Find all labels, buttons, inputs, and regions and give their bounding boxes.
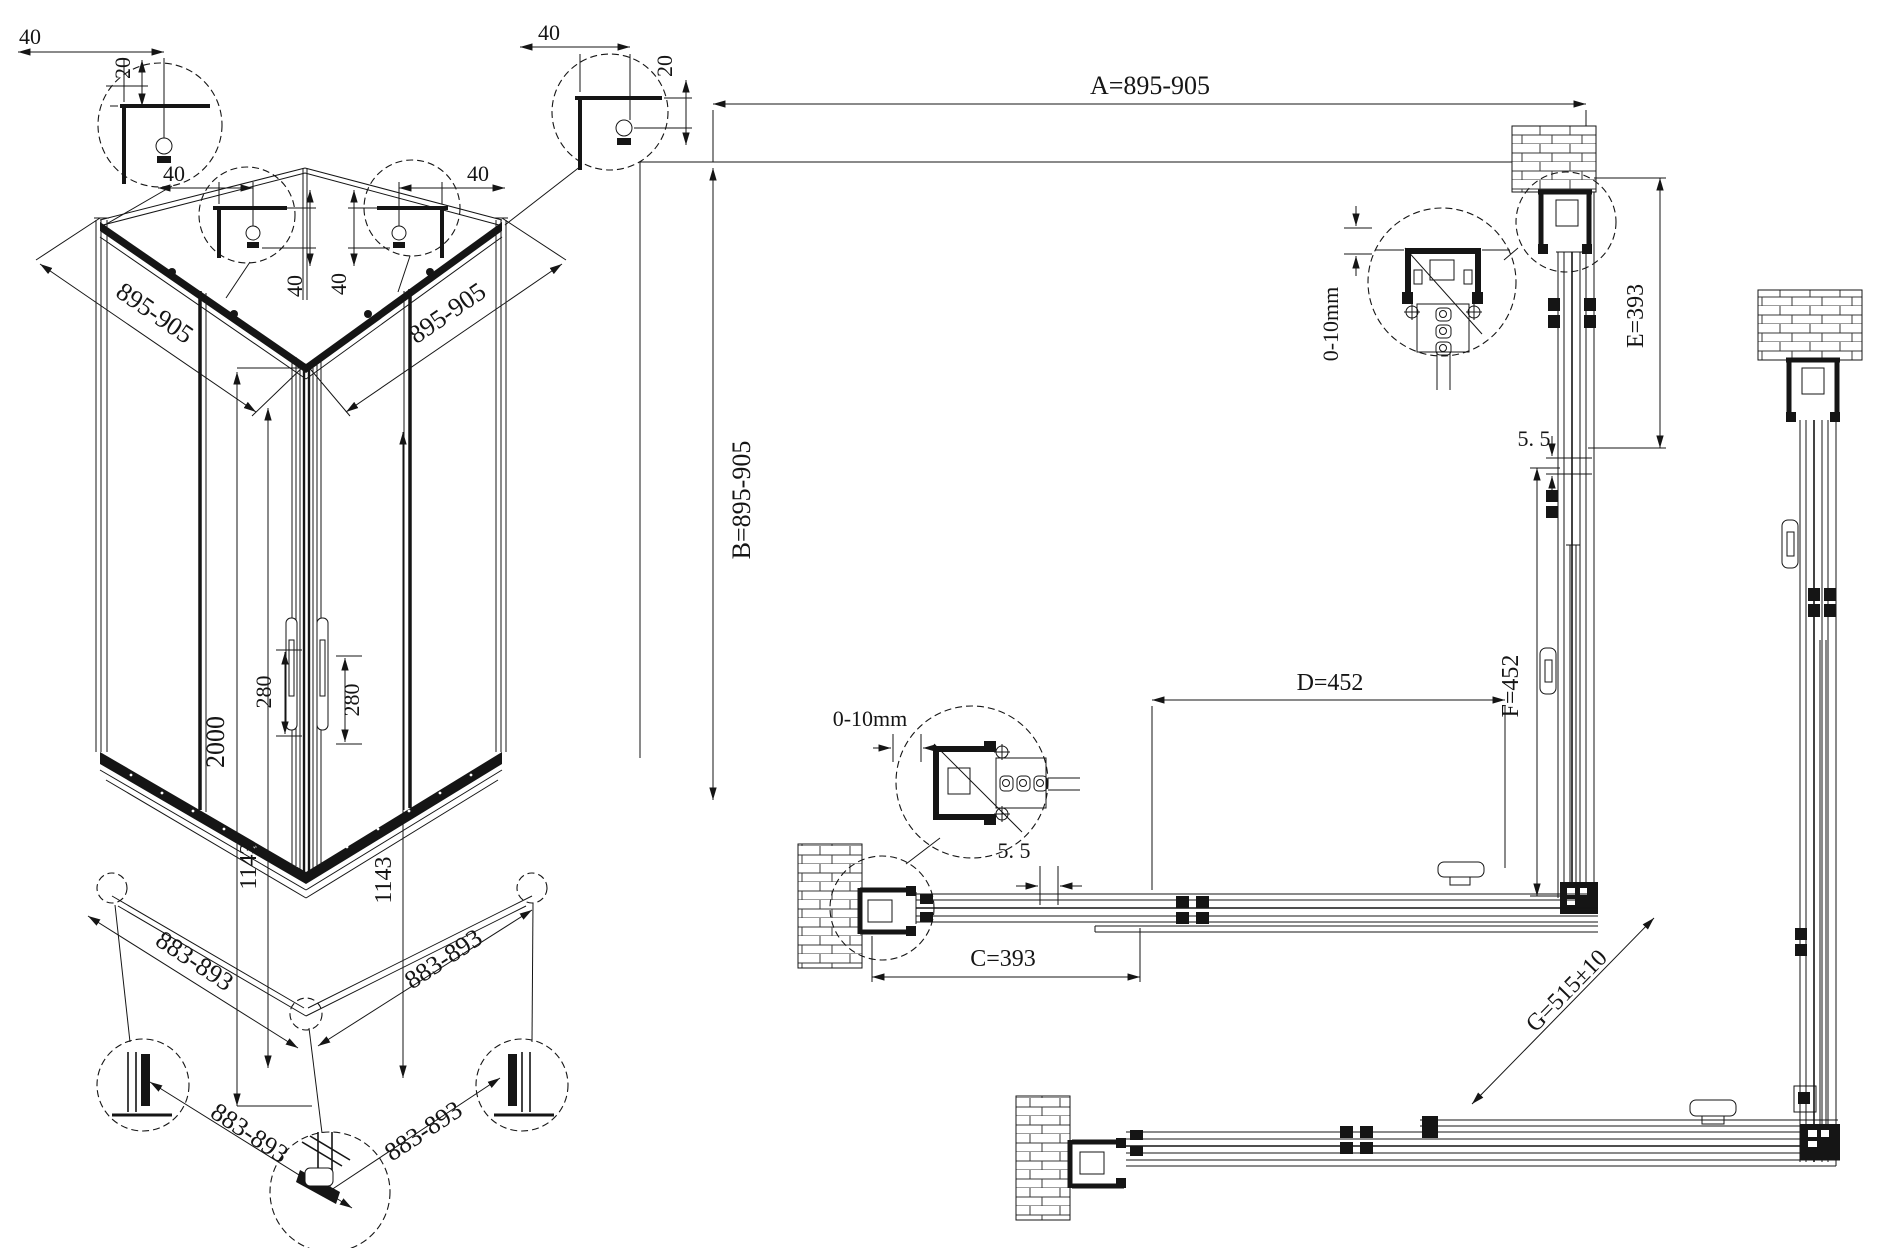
leader-line [906, 838, 940, 864]
brick-wall-top [1512, 126, 1596, 192]
dim-handle-right: 280 [339, 684, 364, 717]
wall-profile-top [1538, 192, 1592, 252]
wall-profile-mirror-bottom [1070, 1140, 1124, 1188]
brick-wall-mirror-top [1758, 290, 1862, 360]
leader-line [115, 905, 130, 1042]
door-handle-left [286, 618, 297, 730]
roller-bracket-mirror [1130, 1130, 1143, 1156]
door-end-cap [1422, 1116, 1438, 1138]
panel-clip-lower [1546, 490, 1558, 518]
dim-tray-right: 883-893 [379, 1095, 467, 1167]
leader-line [226, 262, 250, 298]
screw-icon [392, 226, 406, 240]
door-handle-plan-bottom [1438, 862, 1484, 877]
mirror-right-leg [1800, 420, 1836, 1166]
door-stiles [292, 357, 321, 866]
wall-profile-mirror-top [1786, 360, 1840, 420]
dim-detail-ml-h: 40 [282, 275, 307, 297]
leader-line [398, 256, 410, 292]
roller-bracket [230, 310, 238, 318]
door-handle-mirror-bottom [1690, 1100, 1736, 1116]
door-glass-top-leg [1566, 545, 1580, 898]
mirror-bottom-leg [1126, 1132, 1840, 1166]
detail-circle-top-right: 40 20 [505, 20, 692, 225]
dim-detail-tr-w: 40 [538, 20, 560, 45]
dim-F: F=452 [1498, 655, 1524, 718]
dim-detail-tl-w: 40 [19, 24, 41, 49]
screw-icon [246, 226, 260, 240]
corner-block [1560, 882, 1598, 914]
leader-line [505, 166, 581, 225]
foot-detail-marker-left [97, 873, 127, 903]
dim-detail-tl-h: 20 [110, 57, 135, 79]
adjustment-bracket [996, 758, 1046, 808]
bottom-profile-detail [508, 1054, 517, 1106]
bottom-profile-detail [141, 1054, 150, 1106]
dim-E: E=393 [1623, 284, 1649, 348]
dim-base-right: 883-893 [399, 923, 487, 995]
dim-gap-bottom: 5. 5 [998, 838, 1031, 863]
iso-view: 895-905 895-905 2000 1143 1143 280 280 8… [18, 20, 692, 1248]
bottom-rail-left [100, 752, 306, 884]
dim-line-width-right [346, 264, 562, 412]
roller-bracket [364, 310, 372, 318]
dim-adjust-top: 0-10mm [1318, 287, 1343, 362]
door-handle-right [317, 618, 328, 730]
plan-top-right-assembly [1512, 126, 1598, 914]
dim-detail-ml-w: 40 [163, 161, 185, 186]
dim-gap-top: 5. 5 [1518, 426, 1551, 451]
corner-profile-detail [213, 208, 287, 258]
dim-A: A=895-905 [1090, 71, 1210, 100]
front-corner-post [300, 362, 313, 872]
plan-view-mirror [1016, 290, 1862, 1220]
wall-profile-detail [1408, 248, 1478, 300]
roller-bracket [168, 268, 176, 276]
plan-view-main: A=895-905 B=895-905 [640, 71, 1666, 1104]
detail-circle-top-left: 40 20 [18, 24, 222, 226]
detail-circle-bottom-center [270, 1028, 390, 1248]
dim-adjust-bottom: 0-10mm [833, 706, 908, 731]
dim-detail-tr-h: 20 [652, 55, 677, 77]
dim-height: 2000 [201, 716, 230, 768]
screw-icon [616, 120, 632, 136]
dim-C: C=393 [970, 946, 1036, 972]
dim-door-left: 1143 [236, 842, 262, 889]
panel-clip-mirror-right-2 [1795, 928, 1807, 956]
dim-D: D=452 [1297, 670, 1364, 696]
dim-detail-mr-w: 40 [467, 161, 489, 186]
plan-bottom-left-assembly [798, 844, 1598, 968]
brick-wall-mirror-bottom [1016, 1096, 1070, 1220]
corner-block-mirror [1800, 1124, 1840, 1160]
door-handle-mirror-right [1782, 520, 1798, 568]
leader-line [532, 903, 533, 1042]
wall-profile-detail [936, 746, 992, 820]
door-handle-plan-right [1540, 648, 1556, 694]
roller-bracket [426, 268, 434, 276]
leader-line [309, 1028, 322, 1133]
dim-detail-mr-h: 40 [326, 273, 351, 295]
shower-enclosure-technical-drawing: 895-905 895-905 2000 1143 1143 280 280 8… [0, 0, 1897, 1248]
leader-line [103, 186, 172, 226]
panel-clip-mirror-bottom [1340, 1126, 1373, 1154]
dim-door-right: 1143 [371, 856, 397, 903]
drawing-page: 895-905 895-905 2000 1143 1143 280 280 8… [0, 0, 1897, 1248]
dim-handle-left: 280 [251, 676, 276, 709]
dim-G: G=515±10 [1521, 945, 1612, 1037]
detail-circle-middle-left: 40 40 [158, 161, 316, 298]
dim-line-width-left [40, 264, 256, 412]
door-glass-bottom-leg [1095, 926, 1598, 932]
screw-icon [156, 138, 172, 154]
corner-profile-detail [377, 208, 448, 258]
dim-base-left: 883-893 [151, 925, 239, 997]
foot-detail-marker-right [517, 873, 547, 903]
dim-B: B=895-905 [727, 441, 756, 560]
